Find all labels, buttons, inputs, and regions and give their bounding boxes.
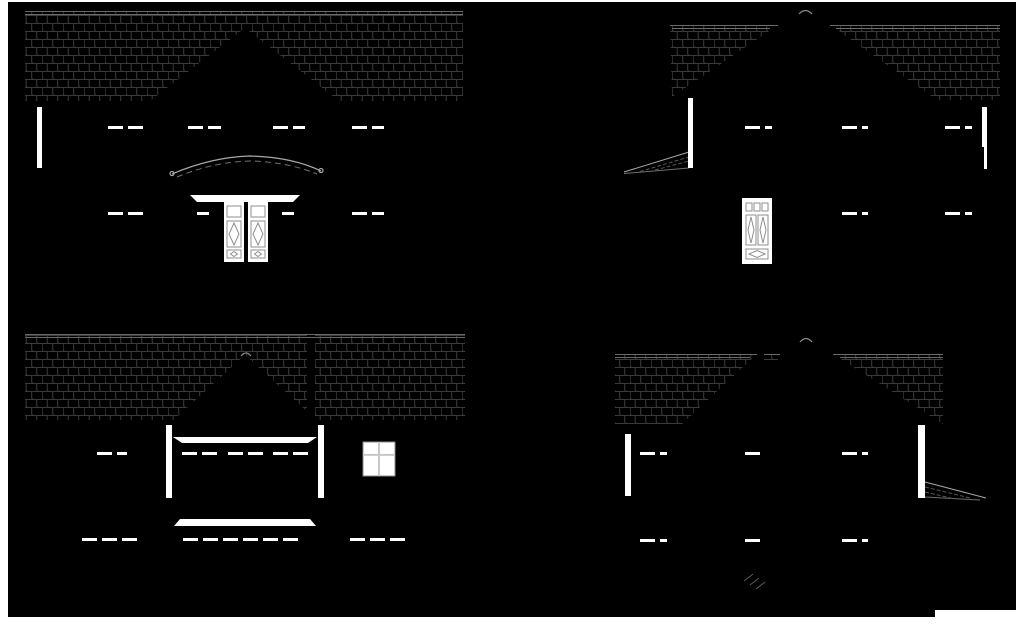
window-dash — [965, 126, 972, 129]
window-dash — [352, 212, 367, 215]
window-dash — [243, 538, 258, 541]
window-dash — [842, 126, 857, 129]
window-dash — [862, 539, 868, 542]
window-dash — [108, 212, 123, 215]
window-dash — [660, 539, 667, 542]
trim-board — [318, 425, 324, 498]
window-dash — [263, 538, 278, 541]
window-dash — [640, 452, 655, 455]
window-dash — [945, 212, 960, 215]
window-dash — [228, 452, 243, 455]
window-dash — [183, 538, 198, 541]
elevation-drawing-canvas — [0, 0, 1024, 632]
window-dash — [352, 126, 367, 129]
trim-board — [918, 425, 925, 498]
window-dash — [350, 538, 365, 541]
window-dash — [128, 212, 143, 215]
entry-door — [742, 198, 772, 264]
window-dash — [203, 538, 218, 541]
window-dash — [745, 126, 760, 129]
window-dash — [372, 212, 384, 215]
window-dash — [640, 539, 655, 542]
window-dash — [82, 538, 97, 541]
entry-door-leaf-right — [248, 202, 268, 262]
elevation-drawing-svg — [0, 0, 1024, 632]
window-dash — [862, 126, 868, 129]
window-dash — [372, 126, 384, 129]
trim-board — [625, 434, 631, 496]
trim-board — [984, 147, 987, 169]
window-dash — [202, 452, 217, 455]
main-roof-shingles — [25, 11, 463, 101]
window-dash — [208, 126, 221, 129]
window-dash — [660, 452, 667, 455]
window-dash — [965, 212, 972, 215]
porch-bottom-beam — [174, 519, 316, 526]
door-header-trim — [190, 195, 300, 202]
trim-board — [37, 107, 42, 168]
porch-top-beam — [173, 437, 317, 443]
window-dash — [248, 452, 263, 455]
window-dash — [842, 212, 857, 215]
window-dash — [128, 126, 143, 129]
trim-board — [688, 98, 693, 168]
window-dash — [745, 539, 760, 542]
window-dash — [122, 538, 137, 541]
window-dash — [273, 452, 288, 455]
window-dash — [862, 212, 868, 215]
main-roof-shingles — [25, 334, 465, 425]
window-dash — [390, 538, 405, 541]
window-dash — [293, 126, 305, 129]
trim-board — [166, 425, 172, 498]
trim-board — [982, 107, 987, 147]
window-dash — [282, 212, 294, 215]
window-dash — [97, 452, 112, 455]
window-dash — [102, 538, 117, 541]
window-dash — [283, 538, 298, 541]
window-dash — [862, 452, 868, 455]
window-dash — [197, 212, 209, 215]
window-dash — [223, 538, 238, 541]
window-dash — [842, 452, 857, 455]
window-dash — [745, 452, 760, 455]
roof-plane-gap — [307, 338, 315, 420]
window-dash — [182, 452, 197, 455]
window-dash — [108, 126, 123, 129]
sheet-corner-notch — [935, 610, 1024, 632]
window-dash — [117, 452, 127, 455]
window-dash — [765, 126, 772, 129]
window-dash — [842, 539, 857, 542]
window-dash — [945, 126, 960, 129]
window-dash — [293, 452, 308, 455]
window-dash — [273, 126, 288, 129]
window-dash — [188, 126, 203, 129]
window-dash — [370, 538, 385, 541]
entry-door-leaf-left — [224, 202, 244, 262]
